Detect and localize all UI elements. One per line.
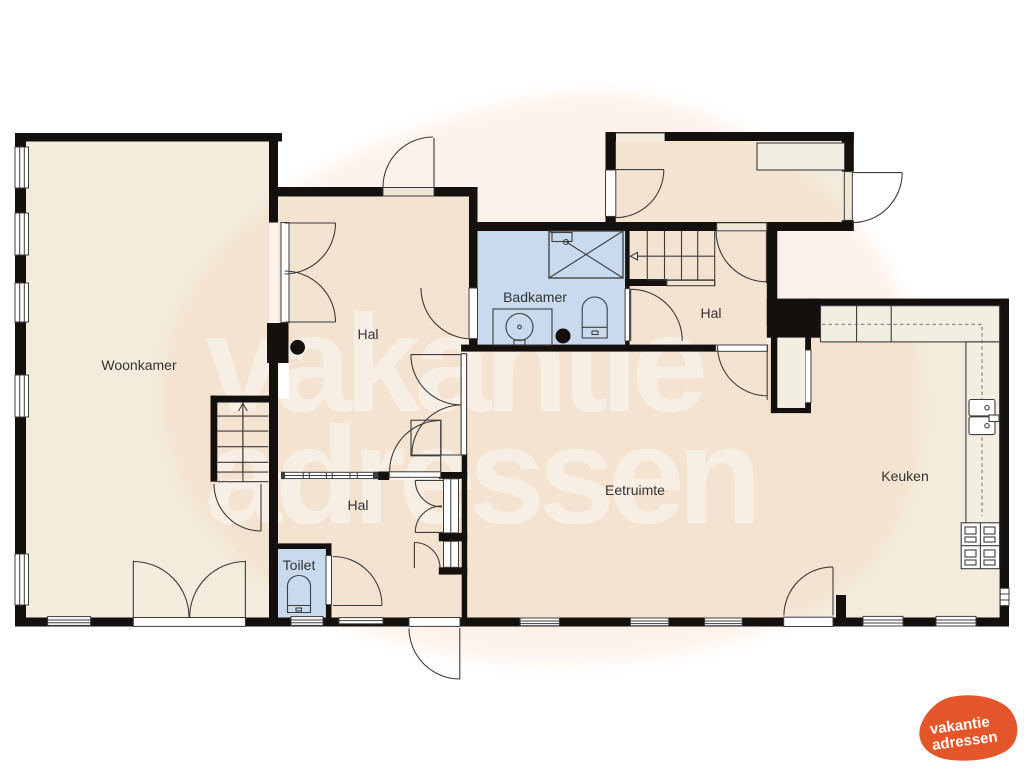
svg-text:Hal: Hal <box>357 326 378 342</box>
svg-text:Keuken: Keuken <box>881 468 928 484</box>
svg-text:Woonkamer: Woonkamer <box>101 357 177 373</box>
svg-text:Eetruimte: Eetruimte <box>605 482 665 498</box>
svg-text:Hal: Hal <box>347 497 368 513</box>
svg-text:Hal: Hal <box>700 305 721 321</box>
svg-text:Toilet: Toilet <box>283 557 316 573</box>
svg-text:Badkamer: Badkamer <box>503 289 567 305</box>
